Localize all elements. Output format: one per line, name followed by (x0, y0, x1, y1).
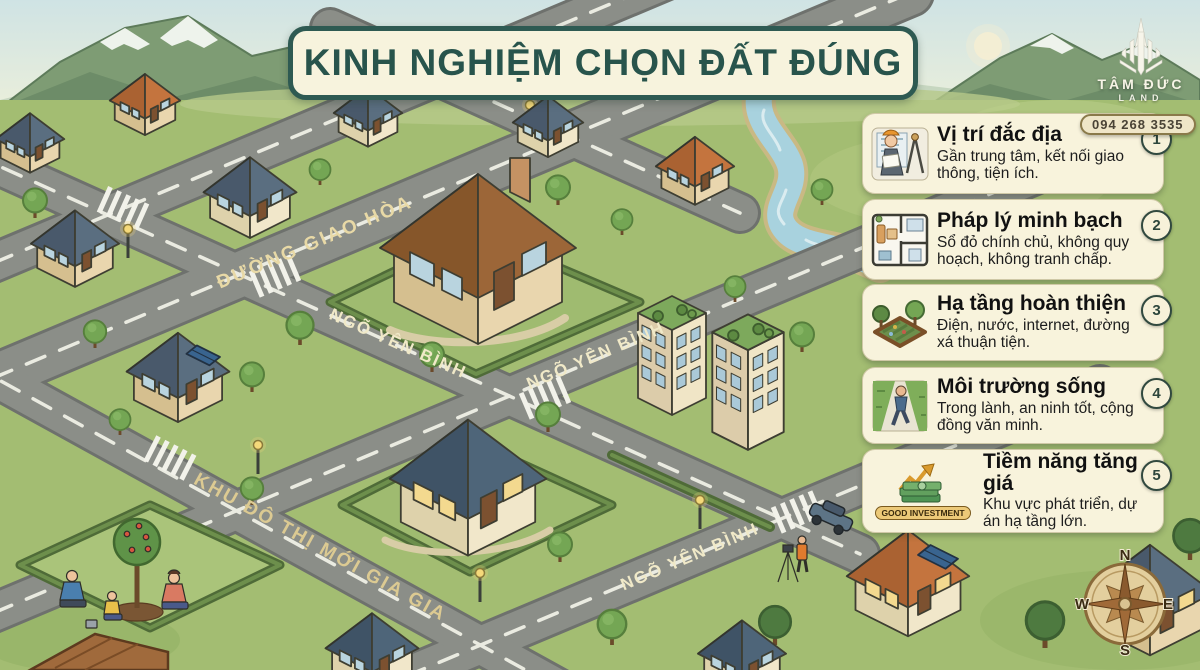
growth-icon (894, 462, 952, 504)
brand-sub: LAND (1086, 93, 1196, 103)
tip-desc: Gần trung tâm, kết nối giao thông, tiện … (937, 148, 1149, 183)
floorplan-icon (871, 211, 929, 269)
tip-desc: Khu vực phát triển, dự án hạ tầng lớn. (983, 496, 1149, 531)
tip-title: Môi trường sống (937, 376, 1149, 397)
compass-n: N (1120, 548, 1131, 564)
tip-number-badge: 4 (1141, 378, 1172, 409)
compass-s: S (1120, 642, 1130, 656)
compass-e: E (1163, 596, 1173, 613)
tip-desc: Trong lành, an ninh tốt, cộng đồng văn m… (937, 400, 1149, 435)
tip-title: Tiềm năng tăng giá (983, 451, 1149, 494)
tip-title: Hạ tầng hoàn thiện (937, 293, 1149, 314)
phone-number: 094 268 3535 (1080, 114, 1196, 135)
tip-card-environment: Môi trường sống Trong lành, an ninh tốt,… (862, 367, 1164, 444)
brand-logo: TÂM ĐỨC LAND (1086, 18, 1196, 103)
tip-card-legal: Pháp lý minh bạch Sổ đỏ chính chủ, không… (862, 199, 1164, 280)
tip-desc: Sổ đỏ chính chủ, không quy hoạch, không … (937, 234, 1149, 269)
page-title: KINH NGHIỆM CHỌN ĐẤT ĐÚNG (304, 42, 902, 84)
tip-title: Pháp lý minh bạch (937, 210, 1149, 231)
good-investment-badge: GOOD INVESTMENT (875, 506, 970, 520)
tip-desc: Điện, nước, internet, đường xá thuận tiệ… (937, 317, 1149, 352)
tip-number-badge: 5 (1141, 460, 1172, 491)
brand-building-icon (1110, 18, 1172, 76)
brand-name: TÂM ĐỨC (1086, 76, 1196, 92)
tip-number-badge: 3 (1141, 295, 1172, 326)
compass-rose: N E S W (1075, 548, 1175, 656)
tip-number-badge: 2 (1141, 210, 1172, 241)
infographic-page: { "title": "KINH NGHIỆM CHỌN ĐẤT ĐÚNG", … (0, 0, 1200, 670)
infrastructure-icon (871, 294, 929, 352)
tip-card-infrastructure: Hạ tầng hoàn thiện Điện, nước, internet,… (862, 284, 1164, 361)
environment-icon (871, 377, 929, 435)
compass-w: W (1075, 596, 1090, 613)
tip-card-growth: GOOD INVESTMENT Tiềm năng tăng giá Khu v… (862, 449, 1164, 533)
architect-icon (871, 125, 929, 183)
title-banner: KINH NGHIỆM CHỌN ĐẤT ĐÚNG (288, 26, 918, 100)
